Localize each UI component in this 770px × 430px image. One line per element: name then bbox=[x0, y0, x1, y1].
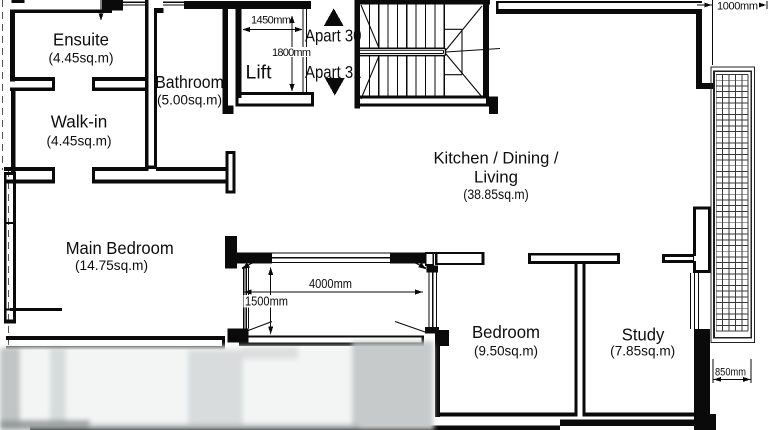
svg-text:1450mm: 1450mm bbox=[251, 15, 291, 27]
svg-text:Study: Study bbox=[622, 325, 665, 345]
svg-text:(7.85sq.m): (7.85sq.m) bbox=[610, 344, 675, 359]
svg-text:Main Bedroom: Main Bedroom bbox=[66, 238, 174, 258]
svg-text:Bedroom: Bedroom bbox=[472, 322, 540, 342]
svg-text:1000mm: 1000mm bbox=[717, 1, 758, 13]
svg-text:Bathroom: Bathroom bbox=[155, 72, 224, 92]
svg-text:Lift: Lift bbox=[246, 62, 273, 84]
svg-text:(4.45sq.m): (4.45sq.m) bbox=[49, 51, 114, 66]
svg-text:4000mm: 4000mm bbox=[309, 277, 352, 291]
svg-text:1500mm: 1500mm bbox=[245, 295, 288, 309]
svg-text:1800mm: 1800mm bbox=[272, 47, 311, 59]
svg-text:Ensuite: Ensuite bbox=[53, 30, 109, 50]
svg-text:(5.00sq.m): (5.00sq.m) bbox=[157, 93, 222, 108]
svg-text:Walk-in: Walk-in bbox=[51, 112, 108, 132]
svg-text:850mm: 850mm bbox=[715, 367, 746, 379]
svg-text:(4.45sq.m): (4.45sq.m) bbox=[47, 134, 112, 149]
svg-text:(9.50sq.m): (9.50sq.m) bbox=[474, 344, 538, 359]
svg-text:Kitchen / Dining /: Kitchen / Dining / bbox=[434, 149, 559, 167]
svg-text:(38.85sq.m): (38.85sq.m) bbox=[463, 187, 529, 202]
svg-text:Living: Living bbox=[474, 169, 518, 187]
svg-text:Apart 30: Apart 30 bbox=[305, 25, 362, 45]
svg-text:(14.75sq.m): (14.75sq.m) bbox=[75, 258, 148, 273]
